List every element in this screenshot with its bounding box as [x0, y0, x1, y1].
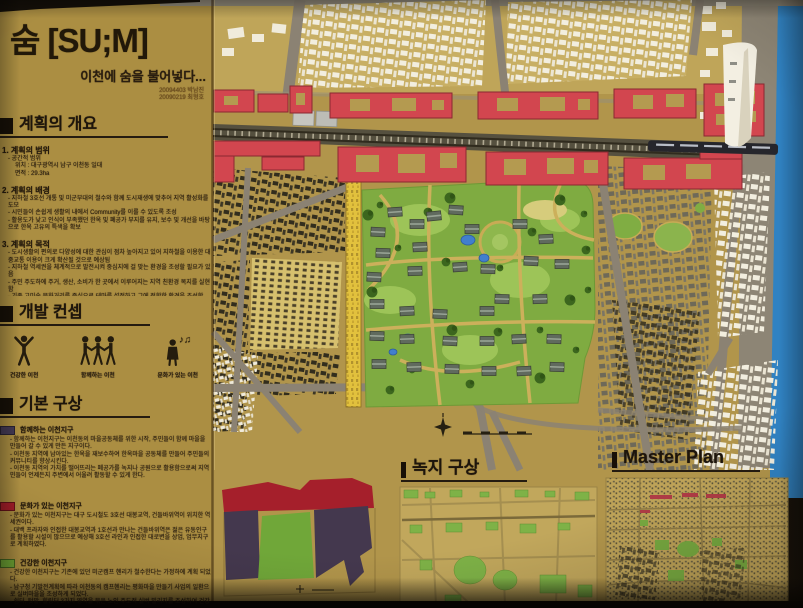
zone-healthy-green — [258, 512, 314, 580]
text-line: - 기존 고미술 문화거리를 중심으로 테마를 설정하고 그에 적합한 환경을 … — [0, 294, 212, 296]
model-tree — [555, 195, 566, 206]
model-house — [443, 336, 457, 346]
section-header-green-plan: 녹지 구상 — [401, 453, 527, 482]
model-house — [481, 264, 495, 273]
section-title: 계획의 개요 — [19, 110, 97, 134]
golden-wall — [346, 180, 361, 407]
model-tree — [535, 373, 546, 384]
model-house — [512, 334, 526, 344]
model-tree — [395, 245, 402, 252]
model-house — [539, 234, 553, 244]
model-tree — [528, 228, 537, 237]
text-line: - 쉼터, 텃밭, 힐링터 3가지 영역을 묶은 노인 주도적 실버 빌리지를 … — [10, 599, 212, 604]
model-house — [550, 362, 564, 371]
model-house — [533, 294, 547, 303]
section-bullet — [612, 452, 617, 468]
board-title: 숨 [SU;M] — [0, 14, 212, 62]
zone-together-west — [224, 510, 260, 580]
section-title: 녹지 구상 — [412, 453, 479, 478]
section-header-overview: 계획의 개요 — [0, 110, 168, 138]
concept-label: 함께하는 이천 — [81, 370, 115, 379]
text-line: - 대백 프라자와 인접한 대봉교역과 1호선과 만나는 건들바위역은 젊은 유… — [10, 528, 212, 550]
model-tree — [442, 258, 451, 267]
subsection-title: 2. 계획의 배경 — [0, 185, 212, 196]
text-line: - 지하철 역세권을 체계적으로 발전시켜 중심지에 걸 맞는 환경을 조성할 … — [0, 265, 212, 280]
concept-icons-row: 건강한 이천 — [0, 326, 212, 379]
model-house — [465, 225, 479, 234]
concept-item-healthy: 건강한 이천 — [10, 334, 38, 379]
model-house — [413, 242, 427, 252]
model-house — [367, 272, 381, 282]
model-tree — [582, 246, 591, 255]
model-house — [371, 227, 385, 237]
model-house — [400, 306, 414, 316]
subsection-title: 3. 계획의 목적 — [0, 239, 212, 250]
text-line: - 시민들이 손쉽게 생활의 내에서 Community를 이룰 수 있도록 조… — [0, 210, 212, 217]
model-tree — [445, 193, 456, 204]
section-header-basic-plan: 기본 구상 — [0, 390, 150, 418]
cheering-person-icon — [11, 334, 37, 366]
text-line: - 도시생활의 편의로 다양성에 대한 관심이 점차 높아지고 있어 지하철을 … — [0, 250, 212, 265]
model-tree — [573, 347, 580, 354]
model-house — [480, 307, 494, 316]
model-house — [407, 362, 421, 371]
model-house — [388, 207, 403, 217]
text-line: 면적 : 29.3ha — [0, 171, 212, 178]
text-line: - 문화가 있는 이천지구는 대구 도시철도 3호선 대봉교역, 건들바위역이 … — [10, 513, 212, 528]
text-line: - 함께하는 이천지구는 이천동의 마을공동체를 위한 시작, 주민들이 함께 … — [10, 437, 212, 452]
left-info-panel: 숨 [SU;M] 이천에 숨을 불어넣다... 20094403 박남진 200… — [0, 0, 212, 608]
model-house — [524, 256, 538, 266]
concept-label: 문화가 있는 이천 — [157, 370, 198, 379]
model-tree — [386, 386, 395, 395]
text-line: - 활용도가 낮고 인식이 부족했던 한옥 및 폐공가 부지를 유지, 보수 및… — [0, 218, 212, 233]
model-tree — [466, 380, 475, 389]
silver-village-park — [346, 156, 595, 407]
board-subtitle: 이천에 숨을 불어넣다... — [0, 66, 212, 85]
model-house — [408, 266, 422, 275]
credits: 20094403 박남진 20090219 최형호 — [0, 88, 212, 102]
music-notes-glyph: ♪♫ — [179, 335, 191, 346]
model-house — [370, 331, 384, 340]
model-house — [372, 360, 386, 369]
section-bullet — [401, 462, 406, 478]
section-title: 기본 구상 — [19, 390, 82, 414]
model-house — [480, 337, 494, 346]
section-bullet — [0, 118, 13, 134]
zoning-diagram — [222, 478, 375, 596]
district-name: 건강한 이천지구 — [20, 558, 67, 568]
title-block: 숨 [SU;M] 이천에 숨을 불어넣다... 20094403 박남진 200… — [0, 14, 212, 102]
master-plan-map — [606, 478, 788, 605]
section-title: Master Plan — [623, 447, 724, 468]
concept-item-together: 함께하는 이천 — [76, 334, 120, 379]
model-tree — [585, 287, 592, 294]
section-bullet — [0, 398, 13, 414]
model-tree — [537, 327, 544, 334]
credit-line: 20094403 박남진 — [0, 88, 204, 95]
green-space-map — [400, 487, 597, 605]
pocket-park — [654, 222, 692, 252]
model-house — [517, 366, 531, 376]
text-line: - 지하철 3호선 개통 및 미군부대의 철수와 함께 도시재생에 맞추어 지역… — [0, 196, 212, 211]
model-house — [555, 260, 569, 269]
section-bullet — [0, 306, 13, 322]
singing-person-icon: ♪♫ — [163, 334, 193, 366]
model-house — [370, 300, 384, 309]
model-tree — [497, 265, 504, 272]
district-color-swatch — [0, 502, 15, 511]
district-together: 함께하는 이천지구 - 함께하는 이천지구는 이천동의 마을공동체를 위한 시작… — [0, 425, 212, 494]
model-house — [400, 334, 414, 343]
model-house — [449, 205, 464, 215]
concept-item-culture: ♪♫ 문화가 있는 이천 — [157, 334, 198, 379]
text-line: - 이천동 지역의 가치를 떨어뜨리는 폐공가를 녹지나 공원으로 활용함으로써… — [10, 466, 212, 481]
model-house — [513, 220, 527, 229]
section-concept: 개발 컨셉 건강한 이천 — [0, 298, 212, 379]
subsection-title: 1. 계획의 범위 — [0, 145, 212, 156]
model-house — [547, 334, 561, 343]
text-line: - 남구청 기발전계획에 따라 이천동의 캠프헨리는 평화마을 만들기 사업의 … — [10, 585, 212, 600]
model-tree — [377, 202, 384, 209]
presentation-board-photo: 숨 [SU;M] 이천에 숨을 불어넣다... 20094403 박남진 200… — [0, 0, 803, 608]
model-tree — [363, 210, 374, 221]
text-line: - 주민 주도하에 주거, 생산, 소비가 한 곳에서 이루어지는 지역 친환경… — [0, 280, 212, 295]
district-name: 문화가 있는 이천지구 — [20, 501, 82, 511]
district-culture: 문화가 있는 이천지구 - 문화가 있는 이천지구는 대구 도시철도 3호선 대… — [0, 501, 212, 551]
district-color-swatch — [0, 426, 15, 435]
model-tree — [581, 211, 588, 218]
model-house — [433, 309, 447, 319]
model-house — [445, 364, 459, 373]
model-house — [376, 248, 390, 257]
section-header-concept: 개발 컨셉 — [0, 298, 150, 326]
model-house — [453, 262, 468, 272]
district-healthy: 건강한 이천지구 - 건강한 이천지구는 기존에 있던 미군캠프 헨리가 철수한… — [0, 558, 212, 604]
concept-label: 건강한 이천 — [10, 370, 38, 379]
text-line: - 이천동 지역에 남아있는 한옥을 재보수하여 한옥마을 공동체를 만들어 주… — [10, 452, 212, 467]
district-name: 함께하는 이천지구 — [20, 425, 73, 435]
model-tree — [565, 295, 576, 306]
model-tree — [367, 287, 378, 298]
model-house — [427, 211, 442, 221]
section-title: 개발 컨셉 — [19, 298, 82, 322]
credit-line: 20090219 최형호 — [0, 95, 204, 102]
section-overview: 계획의 개요 1. 계획의 범위 - 공간적 범위 위치 : 대구광역시 남구 … — [0, 110, 212, 296]
model-tree — [447, 325, 458, 336]
model-tree — [494, 328, 503, 337]
text-line: 위치 : 대구광역시 남구 이천동 일대 — [0, 163, 212, 170]
model-house — [482, 367, 496, 376]
model-house — [495, 294, 509, 303]
district-color-swatch — [0, 559, 15, 568]
model-house — [410, 220, 424, 229]
section-basic-plan: 기본 구상 함께하는 이천지구 - 함께하는 이천지구는 이천동의 마을공동체를… — [0, 390, 212, 604]
section-header-master-plan: Master Plan — [612, 447, 760, 472]
holding-hands-people-icon — [76, 334, 120, 366]
text-line: - 건강한 이천지구는 기존에 있던 미군캠프 헨리가 철수한다는 가정하에 계… — [10, 570, 212, 585]
